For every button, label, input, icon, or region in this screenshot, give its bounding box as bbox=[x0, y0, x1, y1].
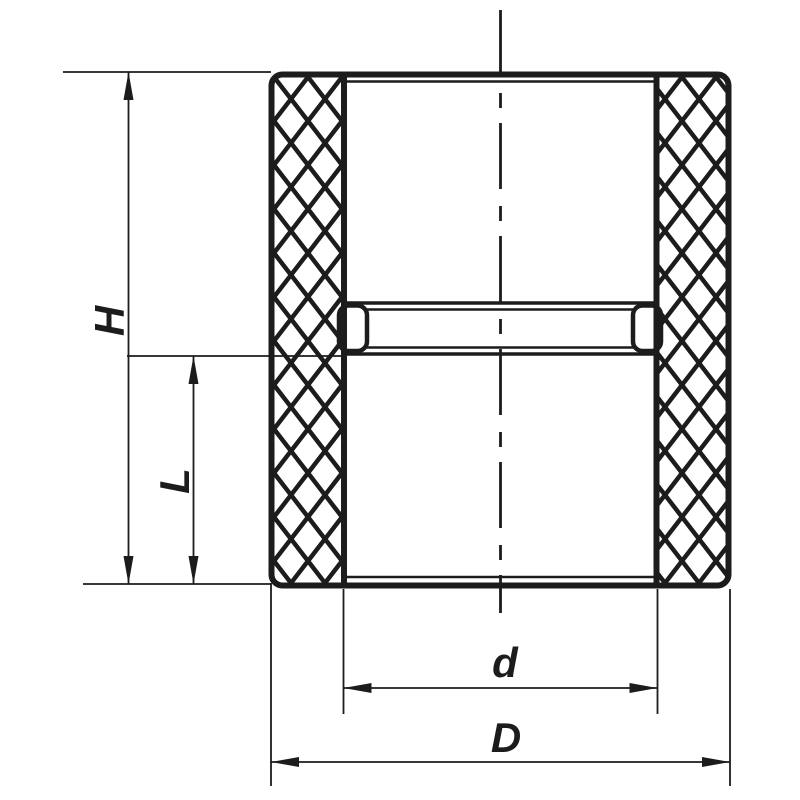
drawing-page: H L d D bbox=[0, 0, 800, 800]
dim-label-h: H bbox=[86, 304, 133, 336]
knurl-band-right bbox=[659, 78, 726, 583]
arrowhead-l-up bbox=[189, 356, 199, 384]
dim-label-l: L bbox=[151, 468, 198, 494]
arrowhead-h-down bbox=[124, 556, 134, 584]
arrowhead-D-right bbox=[702, 757, 730, 767]
arrowhead-l-down bbox=[189, 556, 199, 584]
arrowhead-d-right bbox=[630, 683, 658, 693]
knurl-band-left bbox=[275, 78, 342, 583]
technical-drawing-canvas: H L d D bbox=[0, 0, 800, 800]
arrowhead-h-up bbox=[124, 72, 134, 100]
dim-label-d: d bbox=[492, 639, 519, 686]
dim-label-D: D bbox=[491, 714, 521, 761]
arrowhead-D-left bbox=[271, 757, 299, 767]
arrowhead-d-left bbox=[344, 683, 372, 693]
